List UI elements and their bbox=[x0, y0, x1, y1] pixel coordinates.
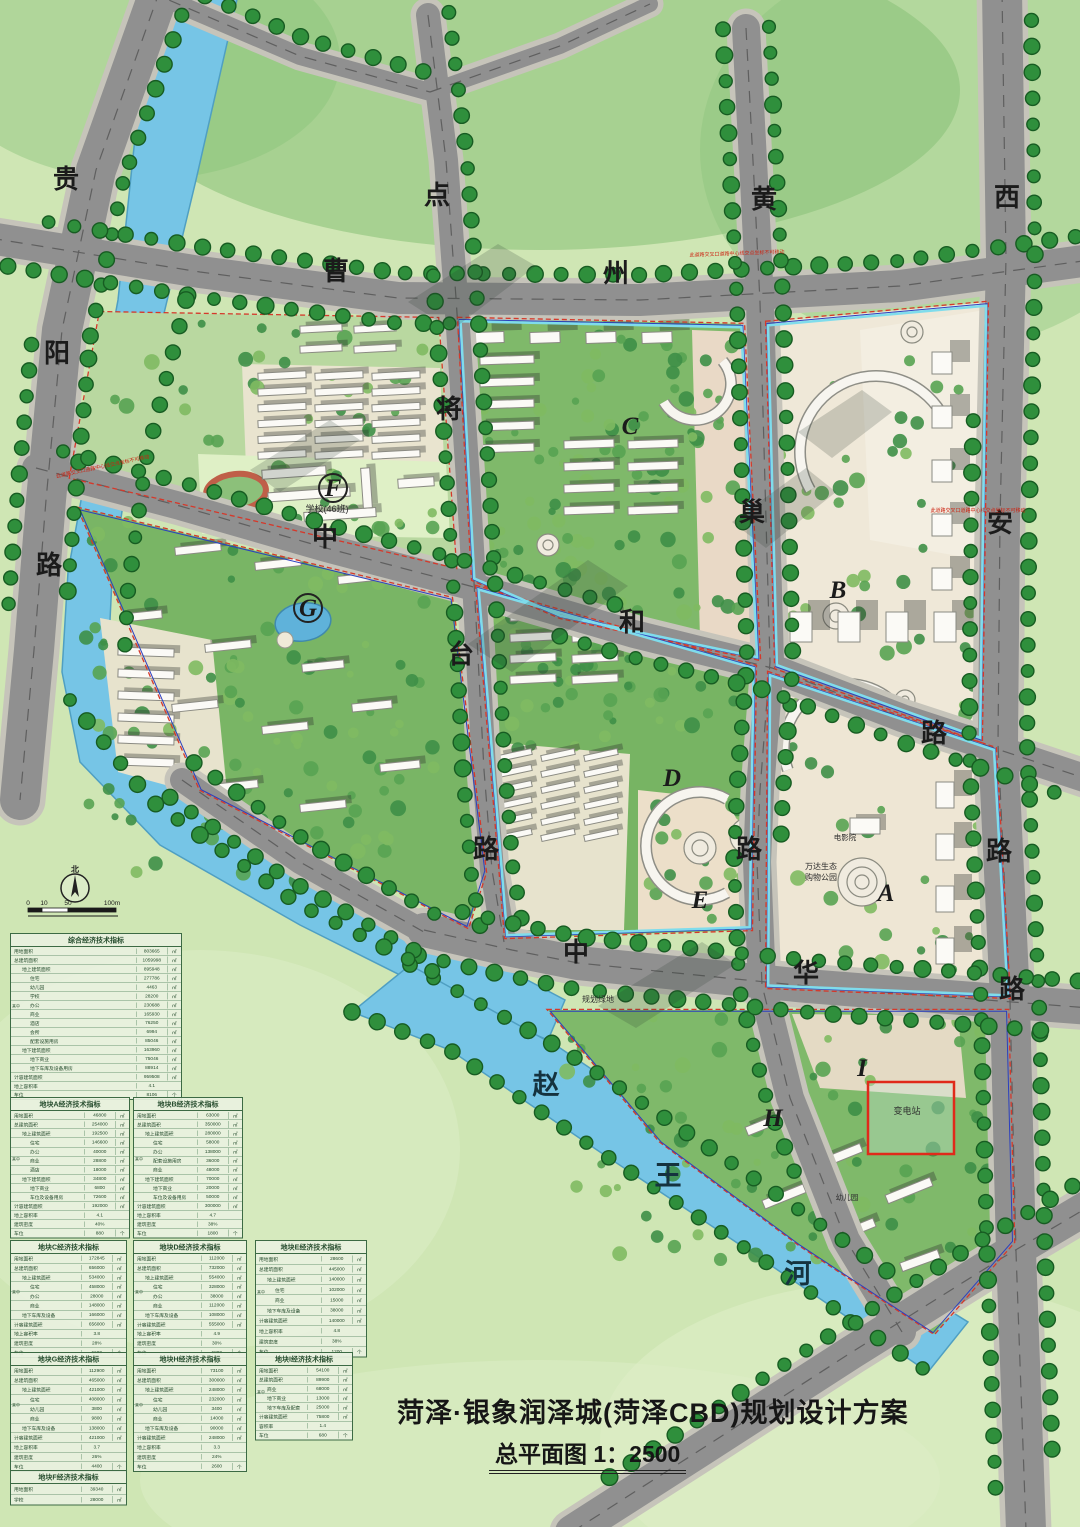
street-tree bbox=[165, 32, 181, 48]
tree-clump bbox=[548, 508, 555, 515]
street-tree bbox=[887, 1287, 902, 1302]
street-tree bbox=[890, 961, 903, 974]
street-tree bbox=[785, 672, 799, 686]
street-tree bbox=[208, 293, 220, 305]
street-tree bbox=[64, 559, 77, 572]
tree-clump bbox=[852, 1157, 862, 1167]
street-tree bbox=[1021, 612, 1036, 627]
site-plan-page: 贵阳路曹州点将台路黄巢路西安路中和路中华路赵王河ABCDEFGHI学校(46班)… bbox=[0, 0, 1080, 1527]
street-tree bbox=[978, 1168, 993, 1183]
street-tree bbox=[159, 372, 173, 386]
street-tree bbox=[315, 891, 331, 907]
street-tree bbox=[390, 57, 406, 73]
tree-clump bbox=[394, 774, 405, 785]
street-tree bbox=[963, 622, 977, 636]
tree-clump bbox=[243, 711, 254, 722]
street-tree bbox=[293, 29, 309, 45]
block-label-C: C bbox=[622, 413, 639, 440]
street-tree bbox=[195, 239, 211, 255]
street-tree bbox=[121, 583, 136, 598]
street-tree bbox=[452, 83, 466, 97]
street-tree bbox=[293, 879, 308, 894]
street-tree bbox=[654, 657, 668, 671]
street-tree bbox=[879, 1263, 895, 1279]
tree-clump bbox=[910, 416, 924, 430]
tree-clump bbox=[712, 1042, 728, 1058]
street-tree bbox=[447, 605, 463, 621]
street-tree bbox=[60, 583, 77, 600]
street-tree bbox=[775, 801, 790, 816]
street-tree bbox=[682, 264, 698, 280]
street-tree bbox=[848, 1316, 862, 1330]
street-tree bbox=[738, 593, 752, 607]
street-tree bbox=[116, 177, 129, 190]
street-tree bbox=[778, 1358, 791, 1371]
street-tree bbox=[1022, 792, 1037, 807]
street-tree bbox=[857, 1248, 873, 1264]
street-tree bbox=[132, 503, 146, 517]
tree-clump bbox=[235, 698, 245, 708]
street-tree bbox=[1035, 1130, 1050, 1145]
street-tree bbox=[963, 779, 978, 794]
place-label: 变电站 bbox=[893, 1105, 920, 1116]
street-tree bbox=[722, 998, 735, 1011]
street-tree bbox=[746, 1171, 761, 1186]
street-tree bbox=[965, 805, 980, 820]
street-tree bbox=[777, 383, 793, 399]
street-tree bbox=[171, 813, 184, 826]
street-tree bbox=[433, 372, 447, 386]
tree-clump bbox=[771, 1151, 779, 1159]
street-tree bbox=[736, 540, 752, 556]
tree-clump bbox=[614, 1184, 621, 1191]
tree-clump bbox=[428, 761, 440, 773]
street-tree bbox=[395, 1024, 410, 1039]
street-tree bbox=[172, 319, 187, 334]
street-tree bbox=[679, 663, 694, 678]
street-tree bbox=[498, 1010, 512, 1024]
building bbox=[572, 674, 618, 684]
street-tree bbox=[439, 451, 451, 463]
street-tree bbox=[1068, 230, 1080, 244]
tree-clump bbox=[637, 1084, 647, 1094]
building bbox=[118, 691, 174, 701]
street-tree bbox=[1020, 740, 1035, 755]
street-tree bbox=[222, 0, 236, 13]
street-tree bbox=[730, 307, 744, 321]
street-tree bbox=[1027, 118, 1039, 130]
tree-clump bbox=[722, 1120, 735, 1133]
street-tree bbox=[826, 1301, 840, 1315]
building bbox=[936, 886, 954, 912]
street-tree bbox=[232, 491, 247, 506]
street-tree bbox=[467, 1059, 483, 1075]
street-tree bbox=[982, 1324, 998, 1340]
street-tree bbox=[554, 268, 568, 282]
street-tree bbox=[1030, 949, 1043, 962]
street-tree bbox=[192, 827, 209, 844]
tree-clump bbox=[917, 946, 925, 954]
street-tree bbox=[777, 1139, 793, 1155]
place-label: 购物公园 bbox=[805, 872, 837, 882]
street-tree bbox=[725, 1156, 738, 1169]
street-tree bbox=[942, 964, 956, 978]
street-tree bbox=[376, 939, 392, 955]
street-tree bbox=[246, 246, 262, 262]
street-tree bbox=[691, 1210, 706, 1225]
building bbox=[932, 406, 952, 428]
street-tree bbox=[719, 75, 732, 88]
street-tree bbox=[964, 491, 978, 505]
street-tree bbox=[974, 988, 988, 1002]
tree-clump bbox=[144, 354, 160, 370]
street-tree bbox=[502, 810, 515, 823]
street-tree bbox=[494, 681, 507, 694]
street-tree bbox=[997, 768, 1013, 784]
tree-clump bbox=[917, 499, 926, 508]
tree-clump bbox=[348, 727, 359, 738]
tree-clump bbox=[350, 843, 366, 859]
street-tree bbox=[455, 905, 470, 920]
block-label-F: F bbox=[324, 475, 342, 502]
scale-tick-label: 0 bbox=[26, 900, 30, 907]
street-tree bbox=[736, 694, 751, 709]
street-tree bbox=[444, 529, 457, 542]
street-tree bbox=[148, 796, 164, 812]
street-tree bbox=[507, 567, 522, 582]
street-tree bbox=[1043, 1415, 1059, 1431]
tree-clump bbox=[641, 1211, 652, 1222]
street-tree bbox=[488, 576, 503, 591]
tree-clump bbox=[671, 829, 682, 840]
tree-clump bbox=[660, 1080, 672, 1092]
street-tree bbox=[1065, 1178, 1080, 1193]
tree-clump bbox=[703, 708, 713, 718]
tree-clump bbox=[693, 604, 700, 611]
street-tree bbox=[475, 368, 490, 383]
building bbox=[934, 612, 956, 642]
street-tree bbox=[465, 868, 479, 882]
tree-clump bbox=[257, 323, 267, 333]
road-name-char: 贵 bbox=[53, 164, 79, 194]
street-tree bbox=[430, 345, 446, 361]
street-tree bbox=[965, 438, 981, 454]
site-plan-map: 贵阳路曹州点将台路黄巢路西安路中和路中华路赵王河ABCDEFGHI学校(46班)… bbox=[0, 0, 1080, 1527]
tree-clump bbox=[119, 398, 135, 414]
street-tree bbox=[257, 297, 274, 314]
tree-clump bbox=[148, 856, 162, 870]
street-tree bbox=[140, 106, 155, 121]
place-label: 学校(46班) bbox=[305, 503, 348, 514]
tree-clump bbox=[390, 800, 406, 816]
street-tree bbox=[939, 247, 954, 262]
street-tree bbox=[251, 801, 264, 814]
street-tree bbox=[136, 477, 150, 491]
tree-clump bbox=[587, 383, 597, 393]
street-tree bbox=[2, 597, 15, 610]
street-tree bbox=[720, 100, 735, 115]
road-name-char: 路 bbox=[473, 834, 500, 864]
street-tree bbox=[963, 570, 978, 585]
tree-clump bbox=[279, 357, 291, 369]
street-tree bbox=[759, 1088, 773, 1102]
block-label-E: E bbox=[691, 887, 709, 914]
tree-clump bbox=[548, 447, 558, 457]
place-label: 规划绿地 bbox=[582, 994, 614, 1004]
street-tree bbox=[273, 816, 285, 828]
building bbox=[838, 612, 860, 642]
tree-clump bbox=[527, 517, 541, 531]
tree-clump bbox=[954, 1036, 965, 1047]
tree-clump bbox=[786, 1241, 796, 1251]
street-tree bbox=[1022, 481, 1038, 497]
tree-clump bbox=[425, 740, 439, 754]
tree-clump bbox=[600, 1185, 612, 1197]
street-tree bbox=[68, 480, 84, 496]
tree-clump bbox=[603, 693, 617, 707]
tree-clump bbox=[668, 1240, 681, 1253]
street-tree bbox=[248, 849, 263, 864]
street-tree bbox=[877, 1011, 892, 1026]
tree-clump bbox=[675, 1057, 691, 1073]
street-tree bbox=[892, 1345, 908, 1361]
street-tree bbox=[988, 1455, 1001, 1468]
tree-clump bbox=[675, 1112, 687, 1124]
tree-clump bbox=[378, 844, 392, 858]
street-tree bbox=[118, 227, 133, 242]
street-tree bbox=[457, 134, 473, 150]
street-tree bbox=[1021, 586, 1035, 600]
street-tree bbox=[482, 472, 497, 487]
street-tree bbox=[679, 1125, 695, 1141]
street-tree bbox=[208, 770, 223, 785]
street-tree bbox=[800, 699, 815, 714]
street-tree bbox=[732, 745, 748, 761]
street-tree bbox=[152, 397, 167, 412]
tree-clump bbox=[651, 1230, 664, 1243]
road-name-char: 黄 bbox=[751, 184, 777, 214]
tree-clump bbox=[284, 788, 293, 797]
street-tree bbox=[968, 882, 985, 899]
street-tree bbox=[238, 860, 251, 873]
street-tree bbox=[81, 451, 96, 466]
street-tree bbox=[949, 753, 962, 766]
street-tree bbox=[1027, 246, 1043, 262]
street-tree bbox=[778, 750, 793, 765]
street-tree bbox=[966, 831, 981, 846]
road-name-char: 阳 bbox=[44, 338, 70, 368]
street-tree bbox=[821, 1329, 836, 1344]
street-tree bbox=[269, 19, 284, 34]
street-tree bbox=[667, 1427, 683, 1443]
street-tree bbox=[504, 836, 518, 850]
street-tree bbox=[966, 414, 980, 428]
street-tree bbox=[962, 674, 977, 689]
street-tree bbox=[953, 1246, 968, 1261]
street-tree bbox=[773, 228, 786, 241]
pond-deck bbox=[277, 632, 293, 648]
street-tree bbox=[1021, 1206, 1035, 1220]
street-tree bbox=[723, 153, 736, 166]
street-tree bbox=[353, 928, 366, 941]
street-tree bbox=[785, 618, 798, 631]
street-tree bbox=[716, 47, 733, 64]
tree-clump bbox=[390, 728, 399, 737]
tree-clump bbox=[815, 1062, 830, 1077]
street-tree bbox=[77, 270, 94, 287]
street-tree bbox=[336, 309, 350, 323]
tree-clump bbox=[638, 411, 648, 421]
river-name-char: 王 bbox=[655, 1161, 682, 1191]
street-tree bbox=[479, 421, 492, 434]
street-tree bbox=[228, 784, 244, 800]
street-tree bbox=[442, 6, 456, 20]
street-tree bbox=[464, 213, 479, 228]
building-shadow bbox=[954, 926, 972, 952]
street-tree bbox=[976, 1091, 990, 1105]
tree-clump bbox=[900, 448, 912, 460]
tree-clump bbox=[821, 765, 834, 778]
building bbox=[354, 344, 396, 353]
street-tree bbox=[259, 874, 274, 889]
building bbox=[564, 483, 614, 493]
tree-clump bbox=[406, 674, 419, 687]
building-shadow bbox=[950, 394, 970, 416]
street-tree bbox=[382, 533, 397, 548]
street-tree bbox=[645, 1441, 661, 1457]
road-name-char: 路 bbox=[921, 718, 948, 748]
block-label-A: A bbox=[876, 880, 895, 907]
tree-clump bbox=[417, 596, 430, 609]
place-label: 幼儿园 bbox=[836, 1192, 859, 1202]
street-tree bbox=[1024, 430, 1038, 444]
street-tree bbox=[740, 645, 754, 659]
tree-clump bbox=[111, 813, 118, 820]
street-tree bbox=[114, 756, 128, 770]
street-tree bbox=[57, 445, 70, 458]
street-tree bbox=[967, 857, 982, 872]
street-tree bbox=[1045, 972, 1059, 986]
tree-clump bbox=[655, 831, 668, 844]
street-tree bbox=[520, 1022, 536, 1038]
street-tree bbox=[96, 735, 110, 749]
street-tree bbox=[732, 385, 747, 400]
street-tree bbox=[737, 1241, 750, 1254]
street-tree bbox=[729, 257, 741, 269]
street-tree bbox=[298, 253, 313, 268]
street-tree bbox=[784, 591, 799, 606]
street-tree bbox=[629, 652, 642, 665]
street-tree bbox=[800, 1344, 813, 1357]
street-tree bbox=[716, 22, 731, 37]
street-tree bbox=[1026, 300, 1042, 316]
tree-clump bbox=[887, 446, 898, 457]
street-tree bbox=[405, 894, 419, 908]
building bbox=[936, 834, 954, 860]
street-tree bbox=[730, 771, 746, 787]
street-tree bbox=[729, 799, 744, 814]
tree-clump bbox=[676, 604, 692, 620]
street-tree bbox=[79, 713, 96, 730]
tree-clump bbox=[967, 1227, 976, 1236]
building bbox=[850, 818, 880, 834]
street-tree bbox=[729, 905, 744, 920]
street-tree bbox=[67, 507, 81, 521]
tree-clump bbox=[660, 532, 675, 547]
street-tree bbox=[779, 435, 794, 450]
street-tree bbox=[624, 1165, 639, 1180]
tree-clump bbox=[666, 366, 680, 380]
street-tree bbox=[776, 775, 791, 790]
street-tree bbox=[461, 959, 477, 975]
street-tree bbox=[294, 830, 308, 844]
street-tree bbox=[777, 357, 793, 373]
street-tree bbox=[704, 670, 718, 684]
street-tree bbox=[1027, 274, 1041, 288]
tree-clump bbox=[293, 741, 301, 749]
tree-clump bbox=[89, 622, 100, 633]
tree-clump bbox=[904, 355, 915, 366]
tree-clump bbox=[308, 576, 323, 591]
building bbox=[474, 331, 504, 343]
street-tree bbox=[724, 203, 740, 219]
street-tree bbox=[120, 611, 134, 625]
street-tree bbox=[338, 904, 354, 920]
tree-clump bbox=[599, 730, 611, 742]
street-tree bbox=[760, 948, 775, 963]
street-tree bbox=[632, 268, 647, 283]
street-tree bbox=[1036, 1157, 1050, 1171]
river-name-char: 河 bbox=[785, 1259, 812, 1289]
tree-clump bbox=[228, 575, 235, 582]
tree-clump bbox=[612, 1246, 627, 1261]
street-tree bbox=[486, 964, 503, 981]
tree-clump bbox=[632, 1064, 640, 1072]
tree-clump bbox=[362, 641, 369, 648]
building bbox=[480, 355, 534, 365]
road-name-char: 将 bbox=[436, 394, 462, 424]
building bbox=[628, 461, 678, 471]
street-tree bbox=[1024, 38, 1040, 54]
street-tree bbox=[1042, 232, 1058, 248]
street-tree bbox=[1021, 559, 1036, 574]
scale-bar-segment bbox=[68, 908, 116, 912]
road-name-char: 路 bbox=[736, 834, 763, 864]
street-tree bbox=[655, 266, 671, 282]
tree-clump bbox=[590, 349, 601, 360]
street-tree bbox=[775, 305, 791, 321]
street-tree bbox=[382, 881, 397, 896]
tree-clump bbox=[604, 419, 616, 431]
building bbox=[564, 439, 614, 449]
tree-clump bbox=[426, 521, 439, 534]
street-tree bbox=[462, 187, 477, 202]
street-tree bbox=[970, 910, 983, 923]
street-tree bbox=[398, 266, 411, 279]
tree-clump bbox=[624, 682, 632, 690]
street-tree bbox=[408, 541, 421, 554]
street-tree bbox=[985, 1377, 999, 1391]
street-tree bbox=[483, 498, 498, 513]
street-tree bbox=[129, 776, 145, 792]
street-tree bbox=[365, 50, 381, 66]
road-name-char: 中 bbox=[312, 522, 338, 552]
tree-clump bbox=[324, 725, 338, 739]
street-tree bbox=[988, 1481, 1002, 1495]
tree-clump bbox=[198, 746, 210, 758]
street-tree bbox=[420, 1034, 434, 1048]
street-tree bbox=[505, 916, 520, 931]
